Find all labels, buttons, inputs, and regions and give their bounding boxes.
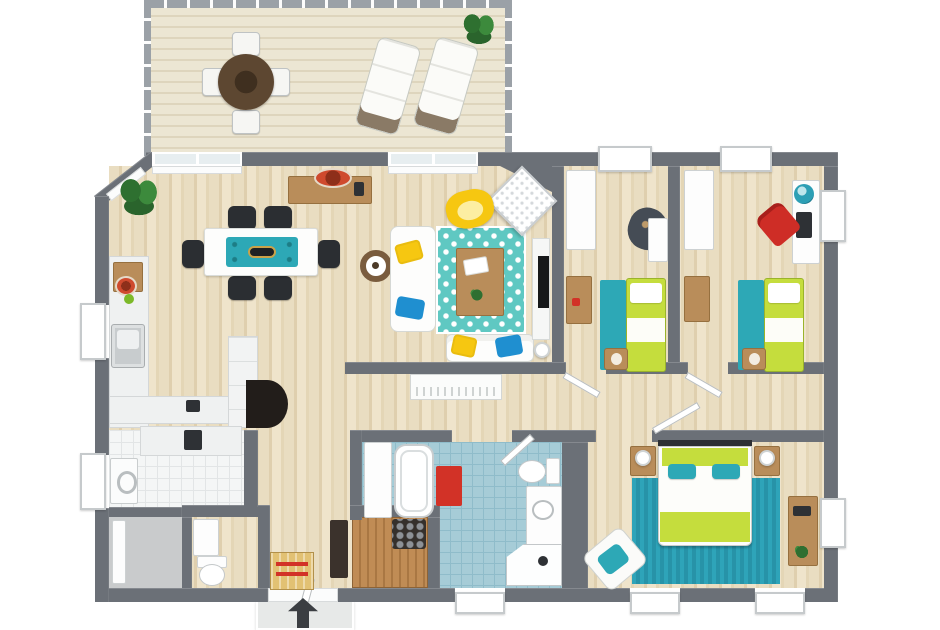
left-window-utility (80, 453, 106, 510)
wc-toilet-bowl (199, 564, 225, 586)
bedroom1-shelf (648, 218, 668, 262)
bedroom-divider-wall (668, 166, 680, 372)
bedroom2-stool (742, 348, 766, 370)
living-plant (116, 174, 162, 220)
bottom-wall-c (505, 588, 630, 602)
corridor-top-wall-a (345, 362, 566, 374)
bath-cabinet (364, 442, 392, 518)
patio-chair-north (232, 32, 260, 56)
master-dresser-plant (792, 542, 812, 562)
right-wall-c (824, 546, 838, 602)
sauna-heater (392, 519, 426, 549)
utility-closet-wall (109, 507, 182, 517)
dining-chair-3 (228, 276, 256, 300)
left-window-kitchen (80, 303, 106, 360)
deck-railing-left (144, 0, 151, 156)
floor-lamp (534, 342, 550, 358)
kitchen-sink (111, 324, 145, 368)
master-lamp-right (759, 450, 775, 466)
right-wall-b (824, 240, 838, 500)
bath-toilet-tank (546, 458, 560, 484)
bottom-wall-b (338, 588, 455, 602)
patio-door-sill-west (152, 166, 242, 174)
hob-knob (186, 400, 200, 412)
top-wall-right-of-doors (478, 152, 598, 166)
master-bed-lime-foot (660, 512, 750, 542)
right-window-south (820, 498, 846, 548)
bottom-wall-d (680, 588, 755, 602)
deck-railing-right (505, 0, 512, 156)
bedroom2-bed (764, 278, 804, 372)
bedroom2-wardrobe (684, 170, 714, 250)
right-window-north (820, 190, 846, 242)
kitchen-counter-bottom (109, 396, 240, 424)
deck-plant (460, 10, 498, 48)
corridor-bottom-wall-a (350, 430, 452, 442)
hall-bench (270, 552, 314, 590)
side-table (360, 250, 392, 282)
floorplan-canvas (0, 0, 940, 630)
bedroom1-bed (626, 278, 666, 372)
utility-hall-wall (244, 430, 258, 507)
hall-cabinet (330, 520, 348, 578)
bedroom1-wardrobe (566, 170, 596, 250)
wood-stove (246, 380, 288, 428)
tv (538, 256, 549, 308)
hall-bench-strap-1 (276, 562, 308, 566)
patio-glass-door-west (152, 152, 242, 166)
bottom-window-master-1 (630, 592, 680, 614)
left-wall-a (95, 196, 109, 305)
patio-table (218, 54, 274, 110)
bedroom2-window (720, 146, 772, 172)
sauna-right-wall (428, 517, 440, 588)
fruit-bowl (115, 276, 137, 296)
top-wall-between-bedroom-windows (652, 152, 720, 166)
coffee-table-plant (468, 286, 486, 304)
bath-mat (436, 466, 462, 506)
left-wall-c (95, 508, 109, 602)
right-wall-a (824, 166, 838, 192)
coffee-maker (184, 430, 202, 450)
bath-toilet-bowl (518, 460, 546, 483)
wc-sink (193, 519, 219, 556)
master-pillow-left (668, 464, 696, 479)
apple (124, 294, 134, 304)
dining-chair-2 (264, 206, 292, 230)
patio-door-sill-east (388, 166, 478, 174)
patio-glass-door-east (388, 152, 478, 166)
wc-right-wall (258, 505, 270, 588)
bottom-window-master-2 (755, 592, 805, 614)
sideboard-decor (354, 182, 364, 196)
bedroom1-desk-item (572, 298, 580, 306)
bedroom2-desk-left (684, 276, 710, 322)
vanity-basin (532, 500, 554, 520)
patio-chair-south (232, 110, 260, 134)
sideboard-bowl (314, 168, 352, 188)
bath-master-wall (562, 442, 588, 588)
bedroom1-stool (604, 348, 628, 370)
closet-shelf (112, 520, 126, 584)
corridor-console (410, 374, 502, 400)
floorplan-scene (0, 0, 940, 630)
bathtub (394, 444, 434, 518)
deck-railing-top (144, 0, 512, 8)
bedroom1-window (598, 146, 652, 172)
dining-chair-1 (228, 206, 256, 230)
washing-machine (110, 458, 138, 504)
bottom-window-bath (455, 592, 505, 614)
dining-tray (248, 246, 276, 258)
hall-bench-strap-2 (276, 572, 308, 576)
dining-chair-5 (182, 240, 204, 268)
master-dresser-item (793, 506, 811, 516)
closet-wc-wall (182, 517, 192, 588)
bedroom2-globe (794, 184, 814, 204)
master-lamp-left (635, 450, 651, 466)
dining-chair-6 (318, 240, 340, 268)
top-wall-center (242, 152, 388, 166)
master-pillow-right (712, 464, 740, 479)
left-wall-b (95, 358, 109, 455)
bottom-wall-a (95, 588, 268, 602)
dining-chair-4 (264, 276, 292, 300)
top-wall-east (772, 152, 838, 166)
